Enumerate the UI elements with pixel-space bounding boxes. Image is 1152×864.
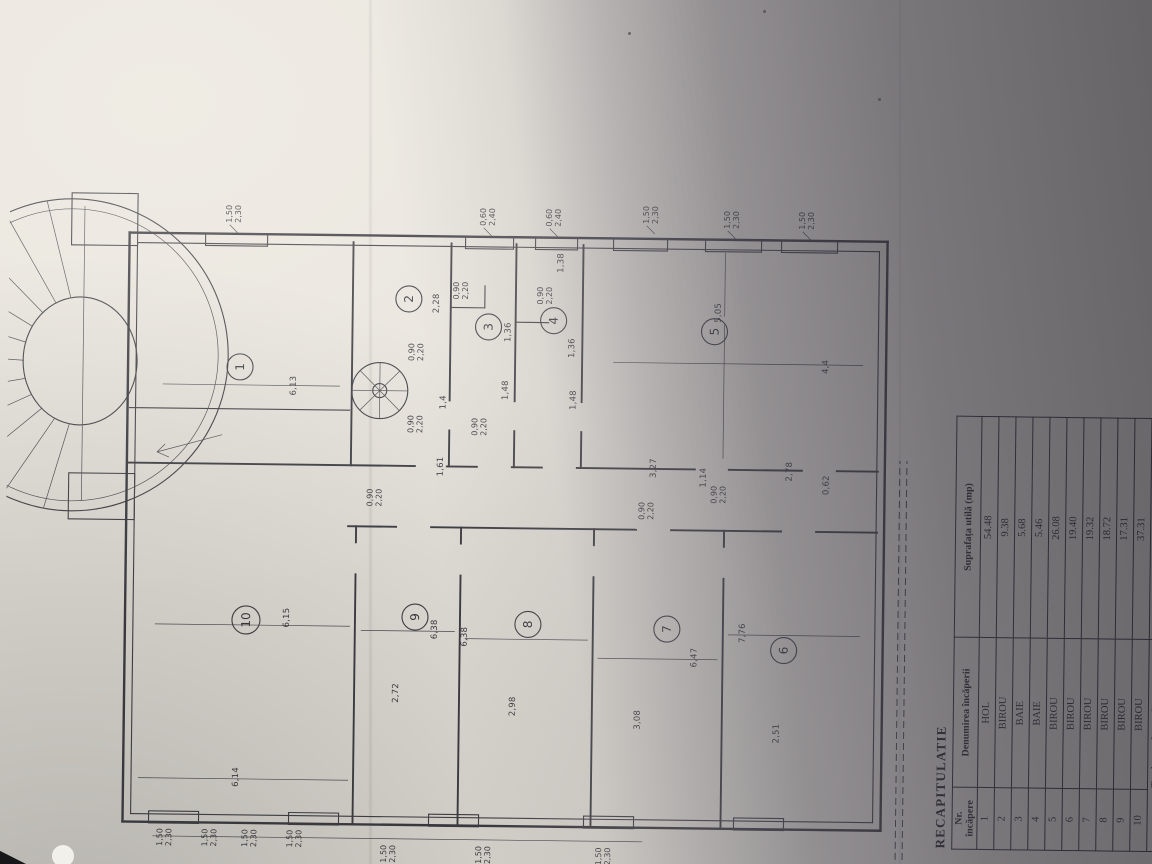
dimension-lines <box>137 246 909 864</box>
door-dim-bottom: 2,20 <box>416 343 425 361</box>
room-circle: 6 <box>770 637 796 663</box>
door-dim-bottom: 2,20 <box>461 282 470 300</box>
dim-label: 1,14 <box>699 468 709 488</box>
dim-label: 2,72 <box>391 683 401 703</box>
window-dim-label: 1,502,30 <box>240 829 258 847</box>
cell-nr: 1 <box>977 787 995 849</box>
window-dim-top: 1,50 <box>155 828 164 846</box>
door-dim-top: 0,90 <box>637 502 646 520</box>
window-dim-top: 1,50 <box>474 846 483 864</box>
room-number: 7 <box>660 625 674 633</box>
dim-label: 6,15 <box>282 608 292 628</box>
room-number: 10 <box>239 612 253 627</box>
cell-name: BIROU <box>1062 639 1081 789</box>
window-dim-bottom: 2,30 <box>164 828 173 846</box>
window-dimension-labels: 1,502,30 0,602,40 0,602,40 1,502,30 1,50… <box>155 200 816 864</box>
dim-label: 1,48 <box>501 380 511 400</box>
cell-name: BAIE <box>1011 638 1030 788</box>
window-dim-label: 1,502,30 <box>200 829 218 847</box>
window-dim-bottom: 2,30 <box>249 829 258 847</box>
interior-walls <box>124 240 880 831</box>
window-dim-label: 1,502,30 <box>225 205 243 223</box>
cell-nr: 9 <box>1113 789 1131 851</box>
dim-label: 2,78 <box>785 462 795 482</box>
door-dim-label: 0,902,20 <box>406 415 424 433</box>
window-dim-label: 1,502,30 <box>379 845 397 863</box>
door-dim-top: 0,90 <box>536 287 545 305</box>
cell-nr: 2 <box>994 788 1012 850</box>
dimension-labels: 6,13 2,28 1,36 1,36 1,4 1,48 1,48 5,05 4… <box>231 249 835 794</box>
dim-label: 1,61 <box>436 457 446 477</box>
door-dim-top: 0,90 <box>452 282 461 300</box>
cell-nr: 7 <box>1079 789 1097 851</box>
dim-label: 6,14 <box>231 767 241 787</box>
window-dim-bottom: 2,40 <box>554 209 563 227</box>
room-circle: 1 <box>227 354 253 380</box>
dim-label: 2,51 <box>771 724 781 744</box>
window-dim-label: 1,502,30 <box>155 828 173 846</box>
door-dim-label: 0,902,20 <box>452 282 470 300</box>
photographed-floor-plan: 1 2 3 4 5 6 7 8 9 10 6,13 2,28 1,36 1,36… <box>0 0 1152 864</box>
cell-nr: 3 <box>1011 788 1029 850</box>
door-dim-top: 0,90 <box>709 486 718 504</box>
small-spiral-stair <box>351 362 408 419</box>
window-dim-bottom: 2,30 <box>483 846 492 864</box>
window-dim-top: 1,50 <box>379 845 388 863</box>
col-header-area: Suprafața utilă (mp) <box>954 416 982 638</box>
dim-label: 1,48 <box>569 390 579 410</box>
room-circle: 7 <box>654 616 680 642</box>
paper-speck <box>628 32 631 35</box>
window-dim-bottom: 2,30 <box>651 206 660 224</box>
door-dim-label: 0,902,20 <box>536 287 554 305</box>
door-dim-top: 0,90 <box>365 489 374 507</box>
paper-speck <box>763 10 766 13</box>
room-number: 6 <box>777 647 791 655</box>
window-dim-label: 0,602,40 <box>545 209 563 227</box>
window-dim-top: 1,50 <box>285 830 294 848</box>
recap-table-block: RECAPITULATIE Nr.încăpere Denumirea încă… <box>932 415 1152 852</box>
dim-label: 1,4 <box>439 395 449 409</box>
window-dim-top: 1,50 <box>642 206 651 224</box>
col-header-nr: Nr.încăpere <box>952 787 978 849</box>
dim-label: 0,62 <box>822 475 832 495</box>
window-dim-label: 0,602,40 <box>479 208 497 226</box>
cell-name: BIROU <box>1130 640 1149 790</box>
door-dim-top: 0,90 <box>406 415 415 433</box>
spiral-staircase-tower <box>2 191 230 521</box>
cell-name: BAIE <box>1028 638 1047 788</box>
door-dim-bottom: 2,20 <box>374 489 383 507</box>
window-dim-bottom: 2,30 <box>603 848 612 864</box>
window-dim-bottom: 2,40 <box>488 208 497 226</box>
cell-nr: 8 <box>1096 789 1114 851</box>
dim-label: 6,38 <box>460 627 470 647</box>
window-dim-bottom: 2,30 <box>234 205 243 223</box>
room-number: 5 <box>707 328 721 336</box>
room-number: 3 <box>482 323 496 331</box>
window-dim-bottom: 2,30 <box>294 830 303 848</box>
cell-nr: 5 <box>1045 788 1063 850</box>
window-dim-top: 1,50 <box>225 205 234 223</box>
room-circle: 3 <box>475 314 501 340</box>
cell-name: BIROU <box>1113 640 1132 790</box>
dim-label: 4,4 <box>821 360 831 374</box>
window-dim-label: 1,502,30 <box>642 206 660 224</box>
dim-label: 1,38 <box>556 253 566 273</box>
door-dim-bottom: 2,20 <box>479 418 488 436</box>
cell-name: HOL <box>977 638 996 788</box>
photo-artifact-dot <box>52 845 74 864</box>
room-circle: 9 <box>402 604 428 630</box>
dim-label: 3,08 <box>633 710 643 730</box>
door-dim-label: 0,902,20 <box>365 489 383 507</box>
dim-label: 6,47 <box>689 648 699 668</box>
dim-label: 6,13 <box>289 376 299 396</box>
window-dim-label: 1,502,30 <box>594 847 612 864</box>
window-dim-bottom: 2,30 <box>732 211 741 229</box>
window-dim-bottom: 2,30 <box>807 212 816 230</box>
dim-label: 1,36 <box>567 338 577 358</box>
window-dim-label: 1,502,30 <box>723 211 741 229</box>
window-dim-bottom: 2,30 <box>388 845 397 863</box>
table-body: 1HOL54.482BIROU9.383BAIE5.684BAIE5.465BI… <box>977 416 1152 851</box>
dim-label: 2,28 <box>432 293 442 313</box>
cell-name: BIROU <box>1096 639 1115 789</box>
document-layer: 1 2 3 4 5 6 7 8 9 10 6,13 2,28 1,36 1,36… <box>2 0 1152 864</box>
window-dim-label: 1,502,30 <box>285 830 303 848</box>
window-dim-label: 1,502,30 <box>474 846 492 864</box>
cell-nr: 4 <box>1028 788 1046 850</box>
col-header-name: Denumirea încăperii <box>952 638 979 788</box>
col-header-nr-line2: încăpere <box>964 800 975 837</box>
room-circle: 10 <box>232 606 260 634</box>
cell-nr: 6 <box>1062 789 1080 851</box>
dim-label: 5,05 <box>714 303 724 323</box>
cell-nr: 10 <box>1130 789 1148 851</box>
door-dim-top: 0,90 <box>407 343 416 361</box>
room-number: 8 <box>521 621 535 629</box>
dim-label: 3,27 <box>649 458 659 478</box>
window-dim-top: 1,50 <box>594 847 603 864</box>
door-dim-label: 0,902,20 <box>637 502 655 520</box>
room-number: 4 <box>547 317 561 325</box>
door-dim-bottom: 2,20 <box>415 415 424 433</box>
door-dim-bottom: 2,20 <box>545 287 554 305</box>
cell-name: BIROU <box>994 638 1013 788</box>
recap-table: Nr.încăpere Denumirea încăperii Suprafaț… <box>951 416 1152 853</box>
dim-label: 1,36 <box>503 322 513 342</box>
room-circle: 2 <box>396 286 422 312</box>
door-dim-bottom: 2,20 <box>718 486 727 504</box>
window-dim-top: 1,50 <box>240 829 249 847</box>
room-circle: 4 <box>540 308 566 334</box>
room-number: 2 <box>402 295 416 303</box>
cell-name: BIROU <box>1045 639 1064 789</box>
paper-speck <box>878 98 881 101</box>
door-dim-label: 0,902,20 <box>407 343 425 361</box>
window-dim-top: 1,50 <box>723 211 732 229</box>
door-dim-label: 0,902,20 <box>709 486 727 504</box>
dim-label: 6,38 <box>430 619 440 639</box>
room-circle: 8 <box>515 611 541 637</box>
door-dim-top: 0,90 <box>470 418 479 436</box>
dim-label: 2,98 <box>508 696 518 716</box>
room-number: 1 <box>233 363 247 371</box>
window-dim-top: 1,50 <box>798 212 807 230</box>
window-dim-top: 1,50 <box>200 829 209 847</box>
window-dim-label: 1,502,30 <box>798 212 816 230</box>
room-number: 9 <box>408 613 422 621</box>
col-header-nr-line1: Nr. <box>954 812 965 825</box>
window-dim-top: 0,60 <box>545 209 554 227</box>
window-dim-top: 0,60 <box>479 208 488 226</box>
dim-label: 7,76 <box>738 623 748 643</box>
door-dim-label: 0,902,20 <box>470 418 488 436</box>
cell-name: BIROU <box>1079 639 1098 789</box>
window-dim-bottom: 2,30 <box>209 829 218 847</box>
door-dim-bottom: 2,20 <box>646 502 655 520</box>
